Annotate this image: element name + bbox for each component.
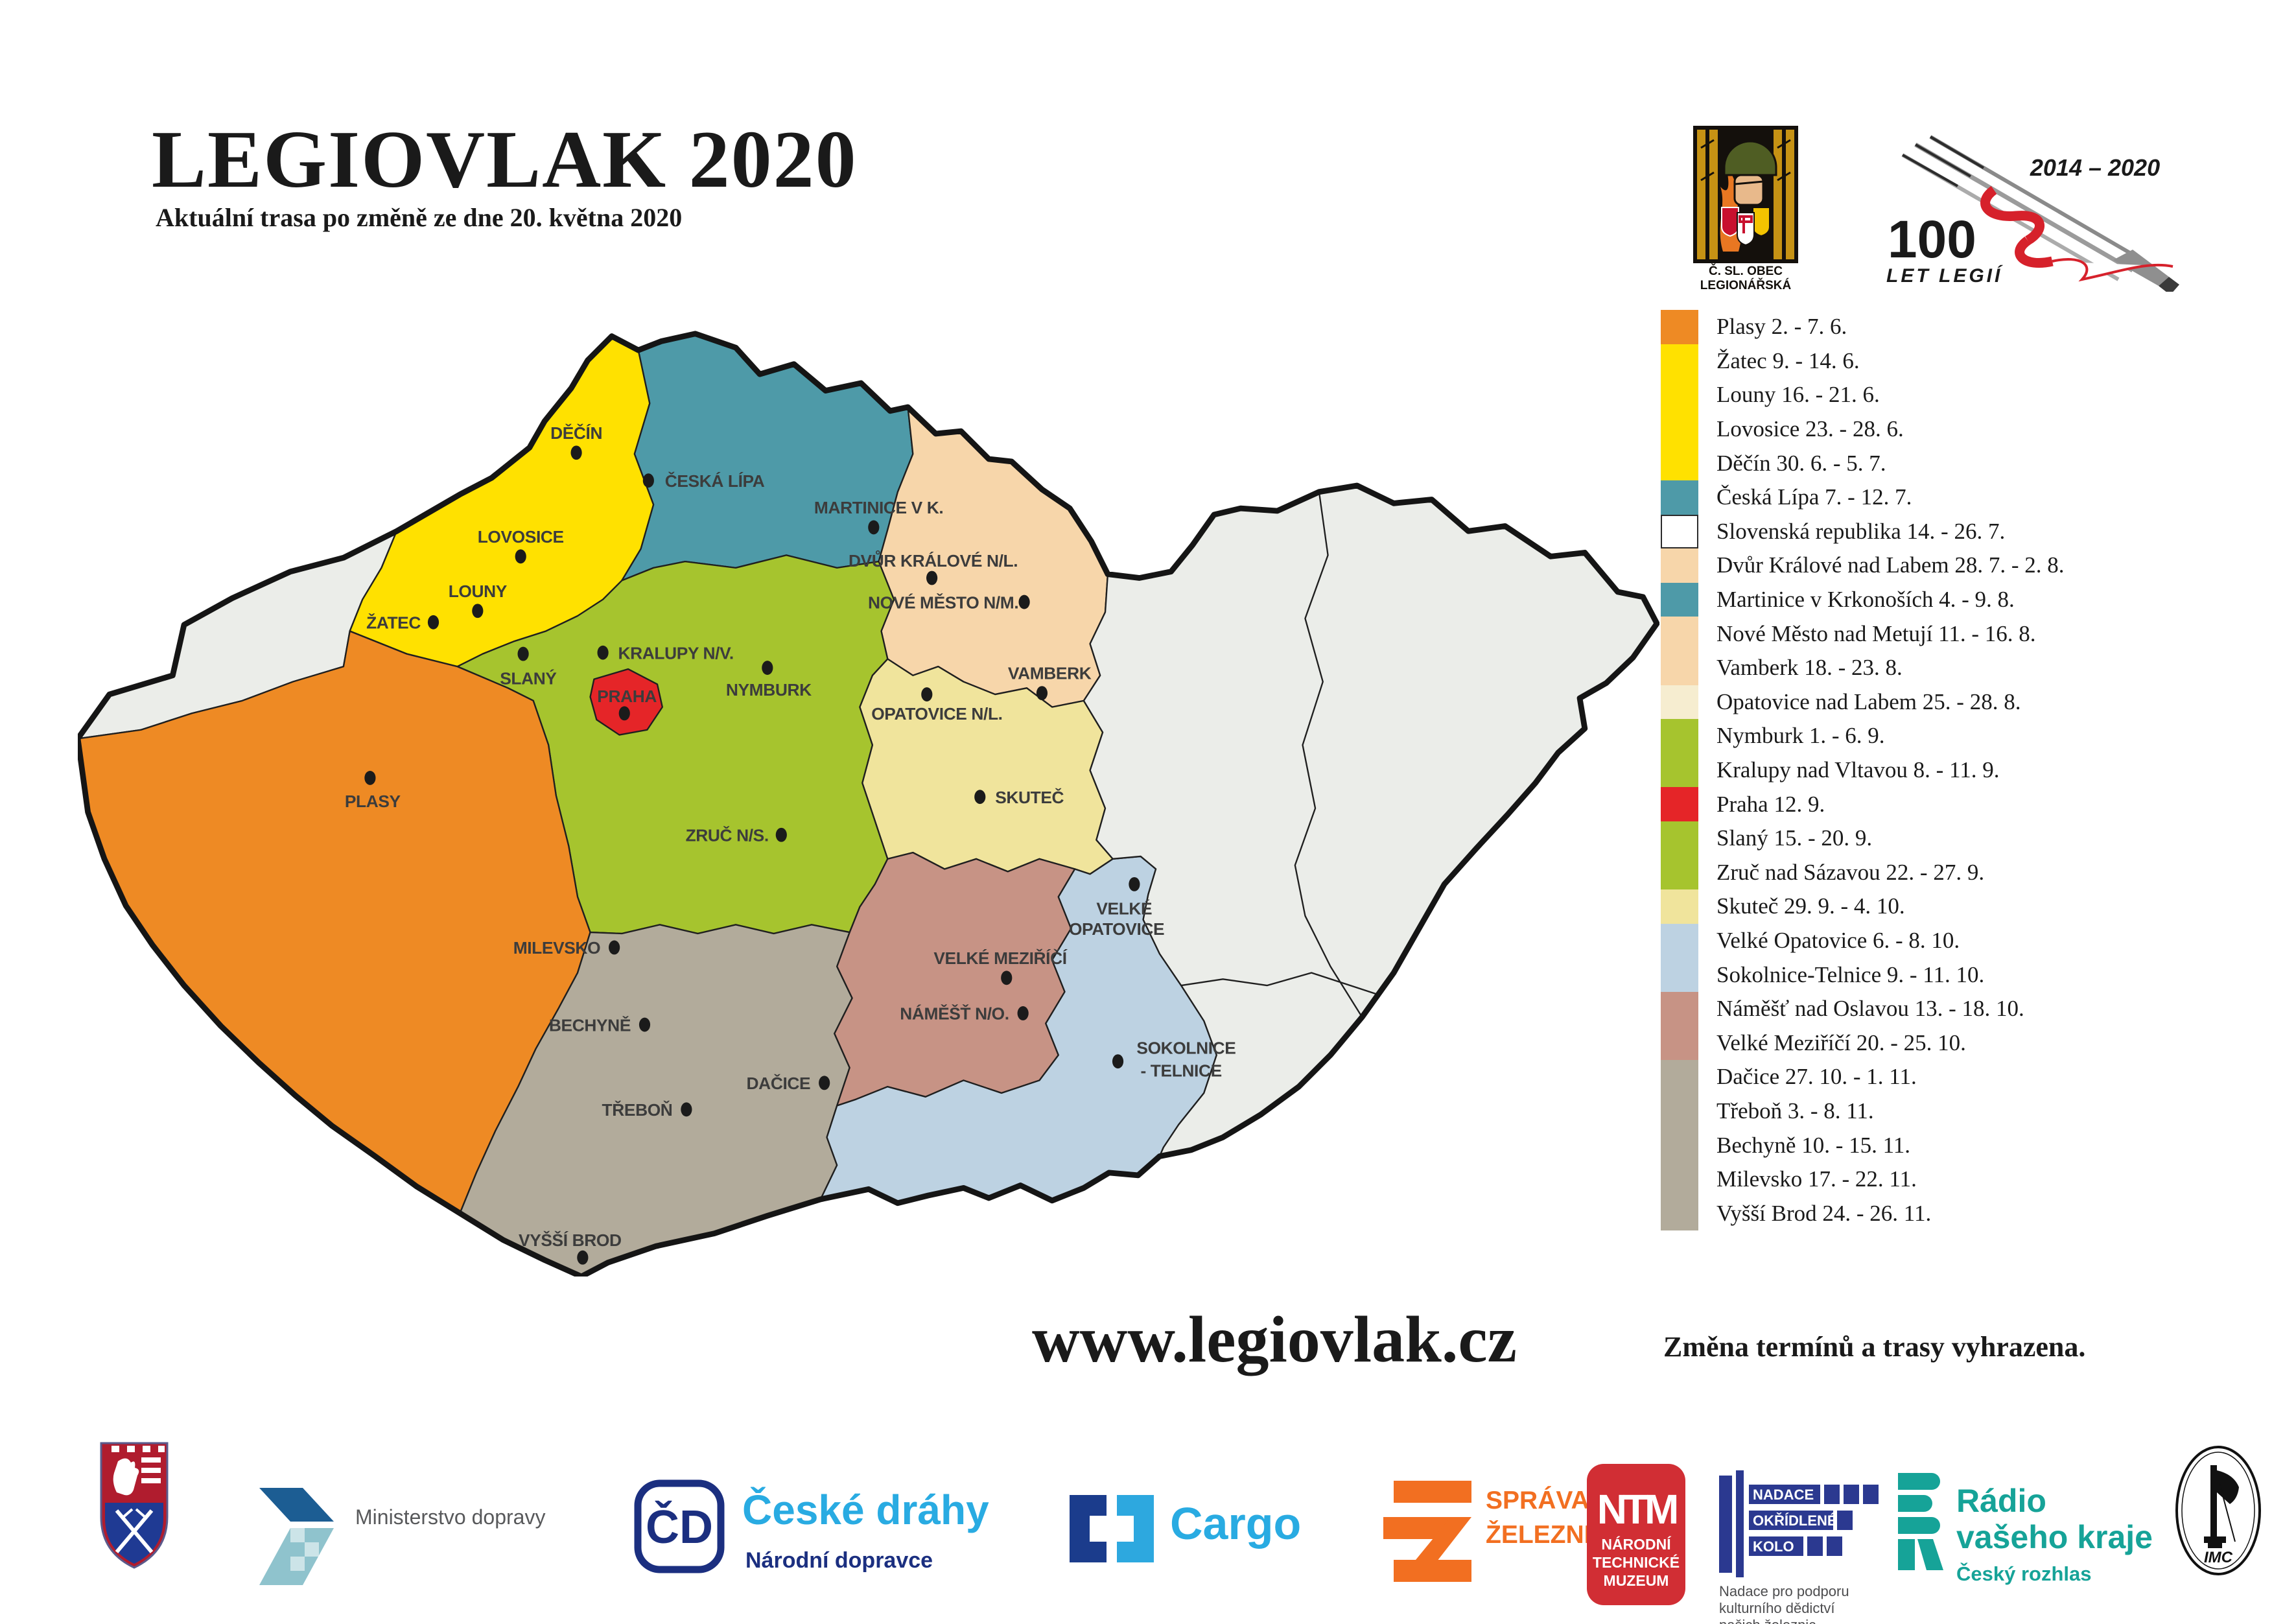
nok-bar1 [1719, 1476, 1732, 1573]
legend-row: Velké Opatovice 6. - 8. 10. [1661, 924, 2153, 958]
legend-label: Bechyně 10. - 15. 11. [1716, 1133, 1910, 1159]
cd-monogram: ČD [646, 1501, 713, 1553]
dot-velke-opatovice [1129, 877, 1140, 891]
legend-label: Vamberk 18. - 23. 8. [1716, 655, 1903, 681]
legend-label: Slovenská republika 14. - 26. 7. [1716, 519, 2005, 545]
csol-legion-emblem: Č. SL. OBEC LEGIONÁŘSKÁ [1684, 122, 1807, 294]
nadace-caption-line2: kulturního dědictví [1719, 1600, 1914, 1617]
czech-republic-route-map: DĚČÍN ČESKÁ LÍPA MARTINICE V K. LOVOSICE… [78, 327, 1659, 1277]
dot-decin [570, 445, 581, 460]
legend-swatch [1661, 378, 1698, 412]
legend-swatch [1661, 1026, 1698, 1060]
ntm-line1: NÁRODNÍ [1601, 1535, 1671, 1553]
legend-swatch [1661, 685, 1698, 720]
ntm-line2: TECHNICKÉ [1593, 1553, 1680, 1571]
label-dvur-kralove: DVŮR KRÁLOVÉ N/L. [849, 550, 1018, 571]
cd-subtitle: Národní dopravce [745, 1548, 933, 1573]
cesky-rozhlas-icon [1898, 1473, 1943, 1570]
dot-lovosice [515, 549, 526, 563]
legend-row: Praha 12. 9. [1661, 787, 2153, 821]
dot-velke-mezirici [1001, 971, 1012, 985]
label-lovosice: LOVOSICE [478, 527, 564, 547]
dot-plasy [364, 771, 375, 785]
legend-row: Česká Lípa 7. - 12. 7. [1661, 480, 2153, 515]
label-kralupy: KRALUPY N/V. [618, 643, 734, 663]
legend-label: Skuteč 29. 9. - 4. 10. [1716, 893, 1905, 919]
label-sokolnice-1: SOKOLNICE [1136, 1038, 1236, 1057]
disclaimer-text: Změna termínů a trasy vyhrazena. [1663, 1330, 2085, 1363]
sprava-zeleznic-logo [1382, 1479, 1473, 1583]
legend-label: Náměšť nad Oslavou 13. - 18. 10. [1716, 996, 2024, 1022]
dot-vamberk [1037, 686, 1048, 700]
chevron-dark-icon [259, 1488, 334, 1522]
nadace-line1: NADACE [1753, 1487, 1814, 1503]
legend-row: Sokolnice-Telnice 9. - 11. 10. [1661, 958, 2153, 992]
ntm-line3: MUZEUM [1604, 1572, 1669, 1589]
legend-swatch [1661, 787, 1698, 821]
label-vamberk: VAMBERK [1008, 664, 1092, 683]
page-subtitle: Aktuální trasa po změně ze dne 20. květn… [156, 202, 682, 233]
label-vyssi-brod: VYŠŠÍ BROD [519, 1230, 622, 1250]
region-vysocina [834, 853, 1075, 1105]
nadace-caption-line3: našich železnic [1719, 1617, 1914, 1624]
rozhlas-line3: Český rozhlas [1956, 1562, 2092, 1586]
label-opatovice: OPATOVICE N/L. [871, 704, 1002, 724]
legend-row: Plasy 2. - 7. 6. [1661, 310, 2153, 344]
ntm-monogram: NTM [1597, 1486, 1677, 1533]
label-plasy: PLASY [345, 792, 401, 811]
cargo-name: Cargo [1170, 1498, 1301, 1549]
legie-years: 2014 – 2020 [2030, 154, 2160, 181]
label-martinice: MARTINICE V K. [814, 498, 943, 517]
nadace-line2: OKŘÍDLENÉ [1753, 1512, 1837, 1529]
dot-kralupy [597, 646, 608, 660]
legend-row: Třeboň 3. - 8. 11. [1661, 1094, 2153, 1129]
legend-label: Třeboň 3. - 8. 11. [1716, 1098, 1874, 1124]
legend-label: Dvůr Králové nad Labem 28. 7. - 2. 8. [1716, 552, 2065, 578]
sprava-line1: SPRÁVA [1486, 1486, 1589, 1516]
rozhlas-line2: vašeho kraje [1956, 1520, 2153, 1555]
legend-row: Nové Město nad Metují 11. - 16. 8. [1661, 617, 2153, 651]
dot-opatovice [921, 687, 932, 701]
ministry-of-transport-logo [256, 1488, 337, 1585]
page-title: LEGIOVLAK 2020 [152, 113, 858, 207]
legend-row: Žatec 9. - 14. 6. [1661, 344, 2153, 379]
legend-swatch [1661, 1196, 1698, 1230]
legend-row: Milevsko 17. - 22. 11. [1661, 1162, 2153, 1197]
legend-label: Slaný 15. - 20. 9. [1716, 825, 1872, 851]
label-ceska-lipa: ČESKÁ LÍPA [665, 471, 765, 491]
label-velke-mezirici: VELKÉ MEZIŘÍČÍ [933, 948, 1067, 968]
legend-label: Martinice v Krkonoších 4. - 9. 8. [1716, 587, 2015, 613]
legend-row: Bechyně 10. - 15. 11. [1661, 1128, 2153, 1162]
legend-label: Děčín 30. 6. - 5. 7. [1716, 451, 1886, 477]
legend-row: Skuteč 29. 9. - 4. 10. [1661, 889, 2153, 924]
dot-nymburk [762, 661, 773, 675]
label-sokolnice-2: - TELNICE [1141, 1061, 1222, 1081]
legie-100: 100 [1888, 210, 1976, 269]
dot-bechyne [639, 1018, 650, 1032]
dot-dvur-kralove [926, 571, 937, 585]
label-zatec: ŽATEC [366, 613, 421, 633]
legiovlak-poster: LEGIOVLAK 2020 Aktuální trasa po změně z… [0, 0, 2296, 1624]
legend-swatch [1661, 719, 1698, 753]
imc-logo: IMC [2173, 1444, 2264, 1577]
legend-swatch [1661, 617, 1698, 651]
legend-row: Lovosice 23. - 28. 6. [1661, 412, 2153, 447]
label-bechyne: BECHYNĚ [549, 1015, 631, 1035]
100-let-legii-logo: 2014 – 2020 100 LET LEGIÍ [1854, 133, 2230, 292]
dot-louny [472, 604, 483, 618]
legend-row: Kralupy nad Vltavou 8. - 11. 9. [1661, 753, 2153, 788]
label-skutec: SKUTEČ [995, 788, 1064, 807]
checker-border-icon [104, 1446, 165, 1452]
legend-row: Dačice 27. 10. - 1. 11. [1661, 1060, 2153, 1094]
legie-sub: LET LEGIÍ [1886, 265, 2003, 287]
legend-label: Velké Opatovice 6. - 8. 10. [1716, 928, 1960, 954]
nadace-okridlene-kolo-logo: NADACE OKŘÍDLENÉ KOLO [1719, 1470, 1881, 1577]
dot-vyssi-brod [577, 1251, 588, 1265]
label-velke-opatovice-2: OPATOVICE [1069, 919, 1164, 939]
legend-swatch [1661, 753, 1698, 788]
legend-row: Dvůr Králové nad Labem 28. 7. - 2. 8. [1661, 548, 2153, 583]
label-trebon: TŘEBOŇ [602, 1100, 673, 1120]
nadace-caption-line1: Nadace pro podporu [1719, 1583, 1914, 1600]
legend-swatch [1661, 480, 1698, 515]
route-legend: Plasy 2. - 7. 6. Žatec 9. - 14. 6. Louny… [1661, 310, 2153, 1230]
legend-row: Slovenská republika 14. - 26. 7. [1661, 515, 2153, 549]
cargo-mark-light [1117, 1495, 1154, 1562]
label-louny: LOUNY [449, 582, 508, 601]
dot-sokolnice [1112, 1054, 1123, 1068]
legend-label: Nové Město nad Metují 11. - 16. 8. [1716, 621, 2036, 647]
cd-name: České dráhy [742, 1486, 989, 1534]
dot-dacice [819, 1076, 830, 1090]
dot-namest [1018, 1006, 1029, 1020]
legend-row: Náměšť nad Oslavou 13. - 18. 10. [1661, 992, 2153, 1026]
cd-cargo-logo [1066, 1483, 1157, 1574]
rozhlas-line1: Rádio [1956, 1483, 2046, 1518]
dot-zruc [776, 828, 787, 842]
legend-swatch [1661, 583, 1698, 617]
legend-swatch [1661, 821, 1698, 856]
label-praha: PRAHA [597, 687, 657, 706]
legend-label: Louny 16. - 21. 6. [1716, 382, 1880, 408]
legend-label: Žatec 9. - 14. 6. [1716, 348, 1860, 374]
legend-swatch [1661, 889, 1698, 924]
monument-flag-icon [2204, 1465, 2239, 1548]
dot-martinice [868, 520, 879, 534]
legend-label: Opatovice nad Labem 25. - 28. 8. [1716, 689, 2021, 715]
legend-swatch [1661, 412, 1698, 447]
cd-logo: ČD [634, 1479, 725, 1573]
label-milevsko: MILEVSKO [513, 938, 600, 958]
legend-label: Kralupy nad Vltavou 8. - 11. 9. [1716, 757, 1999, 783]
csol-text-line1: Č. SL. OBEC [1709, 264, 1783, 278]
legend-label: Lovosice 23. - 28. 6. [1716, 416, 1904, 442]
legend-swatch [1661, 651, 1698, 685]
sz-mark-icon [1383, 1481, 1473, 1582]
label-slany: SLANÝ [500, 668, 557, 688]
label-nove-mesto: NOVÉ MĚSTO N/M. [868, 593, 1018, 612]
legend-swatch [1661, 856, 1698, 890]
imc-text: IMC [2204, 1549, 2233, 1566]
legend-row: Velké Meziříčí 20. - 25. 10. [1661, 1026, 2153, 1060]
label-dacice: DAČICE [747, 1074, 811, 1093]
legend-row: Martinice v Krkonoších 4. - 9. 8. [1661, 583, 2153, 617]
legend-label: Zruč nad Sázavou 22. - 27. 9. [1716, 860, 1984, 886]
label-velke-opatovice-1: VELKÉ [1096, 899, 1152, 919]
dot-ceska-lipa [643, 473, 654, 488]
ministry-label: Ministerstvo dopravy [355, 1505, 545, 1529]
nadace-line3: KOLO [1753, 1538, 1794, 1555]
dot-trebon [681, 1102, 692, 1116]
nadace-caption: Nadace pro podporu kulturního dědictví n… [1719, 1583, 1914, 1624]
army-emblem [99, 1441, 170, 1570]
ntm-logo: NTM NÁRODNÍ TECHNICKÉ MUZEUM [1587, 1464, 1685, 1605]
legend-swatch [1661, 924, 1698, 958]
label-zruc: ZRUČ N/S. [686, 826, 769, 845]
dot-slany [518, 647, 529, 661]
legend-swatch [1661, 958, 1698, 992]
legend-swatch [1661, 1060, 1698, 1094]
legend-swatch [1661, 1128, 1698, 1162]
legend-swatch [1661, 1162, 1698, 1197]
legend-swatch [1661, 548, 1698, 583]
nok-bar2 [1736, 1470, 1744, 1577]
dot-milevsko [609, 941, 620, 955]
stripes-icon [141, 1457, 161, 1483]
legend-label: Plasy 2. - 7. 6. [1716, 314, 1847, 340]
legend-label: Praha 12. 9. [1716, 792, 1825, 818]
label-nymburk: NYMBURK [726, 680, 812, 700]
legend-label: Dačice 27. 10. - 1. 11. [1716, 1064, 1917, 1090]
legend-row: Slaný 15. - 20. 9. [1661, 821, 2153, 856]
cargo-mark-dark [1070, 1495, 1107, 1562]
website-url: www.legiovlak.cz [1032, 1302, 1517, 1378]
legend-label: Vyšší Brod 24. - 26. 11. [1716, 1201, 1931, 1227]
legend-label: Milevsko 17. - 22. 11. [1716, 1166, 1917, 1192]
dot-zatec [428, 615, 439, 630]
legend-row: Vamberk 18. - 23. 8. [1661, 651, 2153, 685]
legend-row: Zruč nad Sázavou 22. - 27. 9. [1661, 856, 2153, 890]
legend-row: Vyšší Brod 24. - 26. 11. [1661, 1196, 2153, 1230]
dot-praha [619, 706, 630, 720]
label-namest: NÁMĚŠŤ N/O. [900, 1004, 1009, 1024]
legend-label: Velké Meziříčí 20. - 25. 10. [1716, 1030, 1966, 1056]
legend-swatch [1661, 344, 1698, 379]
dot-nove-mesto [1019, 595, 1030, 609]
legend-row: Opatovice nad Labem 25. - 28. 8. [1661, 685, 2153, 720]
legend-row: Nymburk 1. - 6. 9. [1661, 719, 2153, 753]
legend-label: Česká Lípa 7. - 12. 7. [1716, 484, 1912, 510]
legend-label: Sokolnice-Telnice 9. - 11. 10. [1716, 962, 1984, 988]
legend-row: Děčín 30. 6. - 5. 7. [1661, 446, 2153, 480]
legend-swatch [1661, 446, 1698, 480]
csol-text-line2: LEGIONÁŘSKÁ [1700, 278, 1792, 292]
label-decin: DĚČÍN [550, 423, 602, 443]
legend-swatch [1661, 515, 1698, 549]
dot-skutec [974, 790, 985, 804]
legend-swatch [1661, 992, 1698, 1026]
legend-row: Louny 16. - 21. 6. [1661, 378, 2153, 412]
legend-label: Nymburk 1. - 6. 9. [1716, 723, 1885, 749]
legend-swatch [1661, 310, 1698, 344]
legend-swatch [1661, 1094, 1698, 1129]
